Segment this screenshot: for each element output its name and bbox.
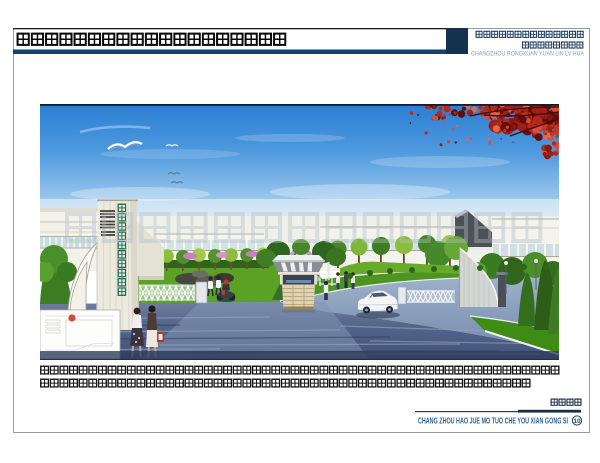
svg-text:CHANG ZHOU HAO JUE MO TUO CHE: CHANG ZHOU HAO JUE MO TUO CHE YOU XIAN G…	[418, 417, 568, 426]
svg-text:10: 10	[573, 418, 581, 425]
svg-text:CHANGZHOU RONGXUAN YUAN LIN LV: CHANGZHOU RONGXUAN YUAN LIN LV HUA	[471, 52, 584, 58]
